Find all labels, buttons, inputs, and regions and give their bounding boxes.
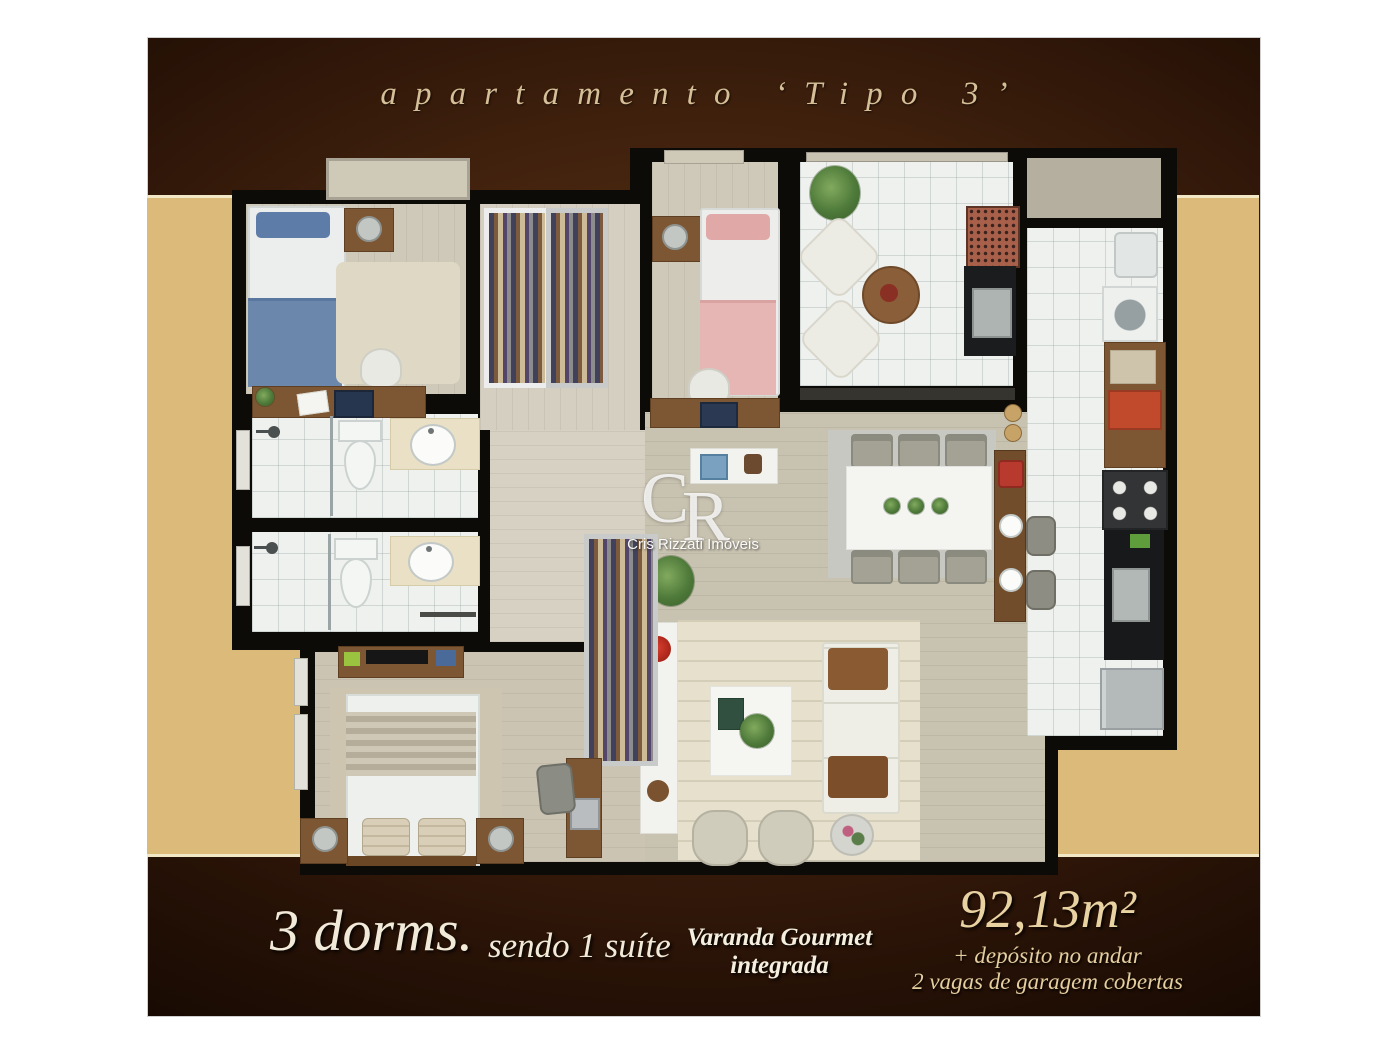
- footer-varanda-line1: Varanda Gourmet: [672, 924, 887, 951]
- footer-varanda-line2: integrada: [672, 952, 887, 979]
- master-lamp-2: [488, 826, 514, 852]
- balcony-door-sill: [800, 388, 1015, 400]
- dining-chair-3: [945, 434, 987, 468]
- footer-area-value: 92,13m²: [925, 882, 1170, 936]
- window-bathroom-2: [236, 546, 250, 606]
- faucet-bathroom-1: [428, 428, 434, 434]
- armchair-living-1: [692, 810, 748, 866]
- bar-stool-1: [1026, 516, 1056, 556]
- armchair-living-2: [758, 810, 814, 866]
- window-master-1: [294, 658, 308, 706]
- bar-stool-2: [1026, 570, 1056, 610]
- pillow-pink: [706, 214, 770, 240]
- dining-chair-1: [851, 434, 893, 468]
- master-picture: [436, 650, 456, 666]
- shower-divider-2: [328, 534, 331, 630]
- master-headboard: [346, 856, 476, 866]
- washing-machine: [1102, 286, 1158, 342]
- towel-rail-2: [420, 612, 476, 617]
- window-box-top: [326, 158, 470, 200]
- lamp-bedroom-1: [356, 216, 382, 242]
- door-knob-2: [1004, 424, 1022, 442]
- shower-arm-1: [256, 430, 270, 433]
- dining-chair-5: [898, 550, 940, 584]
- plant-bedroom-1: [256, 388, 274, 406]
- bar-plate-1: [999, 514, 1023, 538]
- plant-balcony: [810, 166, 860, 220]
- master-pillow-1: [362, 818, 410, 856]
- bar-red-item: [998, 460, 1024, 488]
- grill-sink: [972, 288, 1012, 338]
- window-bathroom-1: [236, 430, 250, 490]
- master-green-item: [344, 652, 360, 666]
- bowl-balcony: [880, 284, 898, 302]
- poster-canvas: apartamento ‘Tipo 3’: [0, 0, 1400, 1049]
- shower-divider-1: [330, 416, 333, 516]
- kitchen-green-item: [1130, 534, 1150, 548]
- master-tv: [366, 650, 428, 664]
- water-heater: [1114, 232, 1158, 278]
- shower-arm-2: [254, 546, 268, 549]
- footer-extra-line2: 2 vagas de garagem cobertas: [905, 970, 1190, 993]
- floor-service-area: [1027, 158, 1161, 218]
- poster-title: apartamento ‘Tipo 3’: [147, 76, 1259, 113]
- lamp-bedroom-2: [662, 224, 688, 250]
- footer-suite-label: sendo 1 suíte: [488, 928, 671, 963]
- master-wardrobe: [584, 534, 658, 766]
- side-table-flowers: [830, 814, 874, 856]
- coffee-table-plant: [740, 714, 774, 748]
- master-lamp-1: [312, 826, 338, 852]
- stove: [1102, 470, 1168, 530]
- bed-runner-blanket: [346, 712, 476, 776]
- master-desk-chair: [535, 762, 576, 815]
- kitchen-sink: [1112, 568, 1150, 622]
- window-master-2: [294, 714, 308, 790]
- dining-chair-4: [851, 550, 893, 584]
- dining-chair-6: [945, 550, 987, 584]
- toilet-tank-2: [334, 538, 378, 560]
- shelf-object: [744, 454, 762, 474]
- dining-plant-3: [932, 498, 948, 514]
- kitchen-red-tray: [1108, 390, 1162, 430]
- desk-chair-bedroom-1: [360, 348, 402, 388]
- decor-bowl: [647, 780, 669, 802]
- bar-plate-2: [999, 568, 1023, 592]
- sofa-pillow-2: [828, 756, 888, 798]
- balcony-rail: [806, 152, 1008, 162]
- fridge: [1100, 668, 1164, 730]
- kitchen-towel: [1110, 350, 1156, 384]
- laptop-bedroom-2: [700, 402, 738, 428]
- wardrobe-1: [484, 208, 550, 388]
- master-pillow-2: [418, 818, 466, 856]
- dining-chair-2: [898, 434, 940, 468]
- door-knob-1: [1004, 404, 1022, 422]
- footer-extra-line1: + depósito no andar: [905, 944, 1190, 967]
- blanket-blue: [248, 298, 342, 387]
- toilet-tank-1: [338, 420, 382, 442]
- sofa-pillow-1: [828, 648, 888, 690]
- dining-plant-1: [884, 498, 900, 514]
- window-bedroom-2-top: [664, 150, 744, 164]
- wardrobe-2: [546, 208, 608, 388]
- pillow-blue: [256, 212, 330, 238]
- laptop-bedroom-1: [334, 390, 374, 418]
- paper-bedroom-1: [297, 390, 330, 416]
- watermark-name: Cris Rizzati Imóveis: [618, 536, 768, 553]
- barbecue-grill: [966, 206, 1020, 268]
- footer-dorms-label: 3 dorms.: [270, 902, 473, 960]
- dining-plant-2: [908, 498, 924, 514]
- faucet-bathroom-2: [426, 546, 432, 552]
